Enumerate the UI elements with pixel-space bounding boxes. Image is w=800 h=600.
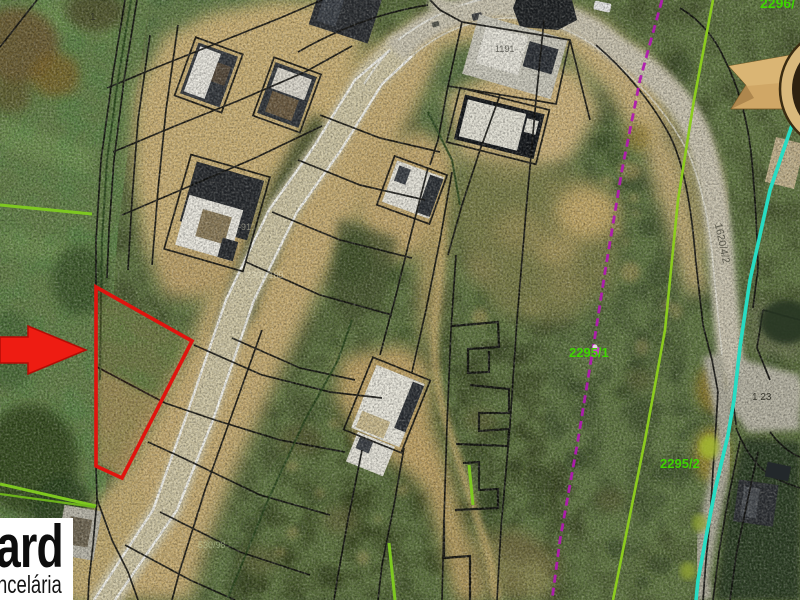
svg-text:2301/185: 2301/185	[246, 270, 284, 280]
svg-text:530/98: 530/98	[198, 540, 226, 550]
svg-text:1191: 1191	[495, 44, 514, 54]
svg-text:2296/: 2296/	[760, 0, 795, 11]
svg-text:-91.: -91.	[238, 222, 254, 232]
svg-text:ncelária: ncelária	[0, 570, 62, 598]
svg-text:1: 1	[90, 12, 96, 23]
svg-text:1 23: 1 23	[752, 392, 772, 403]
svg-text:2295/1: 2295/1	[569, 345, 609, 360]
svg-text:2295/2: 2295/2	[660, 456, 700, 471]
